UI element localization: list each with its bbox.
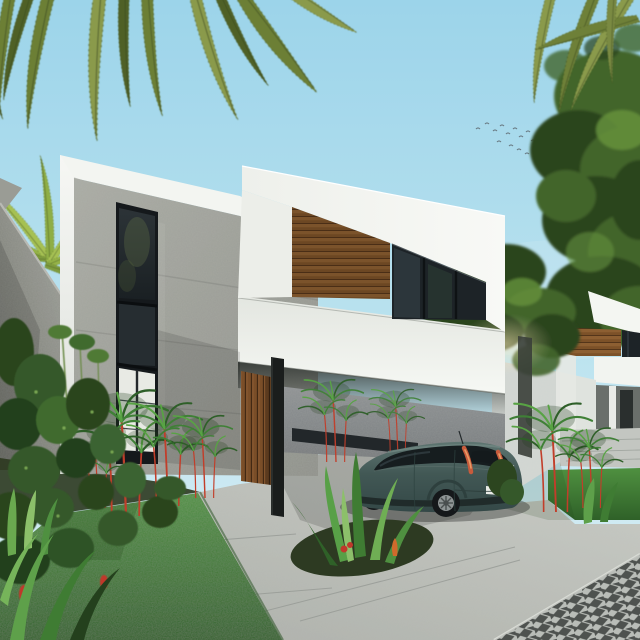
steel-column xyxy=(271,357,284,517)
secondary-porch xyxy=(596,385,640,433)
architectural-render xyxy=(0,0,640,640)
secondary-window xyxy=(622,330,640,357)
upper-corner-face xyxy=(238,190,292,298)
secondary-beam xyxy=(594,357,640,386)
render-canvas xyxy=(0,0,640,640)
